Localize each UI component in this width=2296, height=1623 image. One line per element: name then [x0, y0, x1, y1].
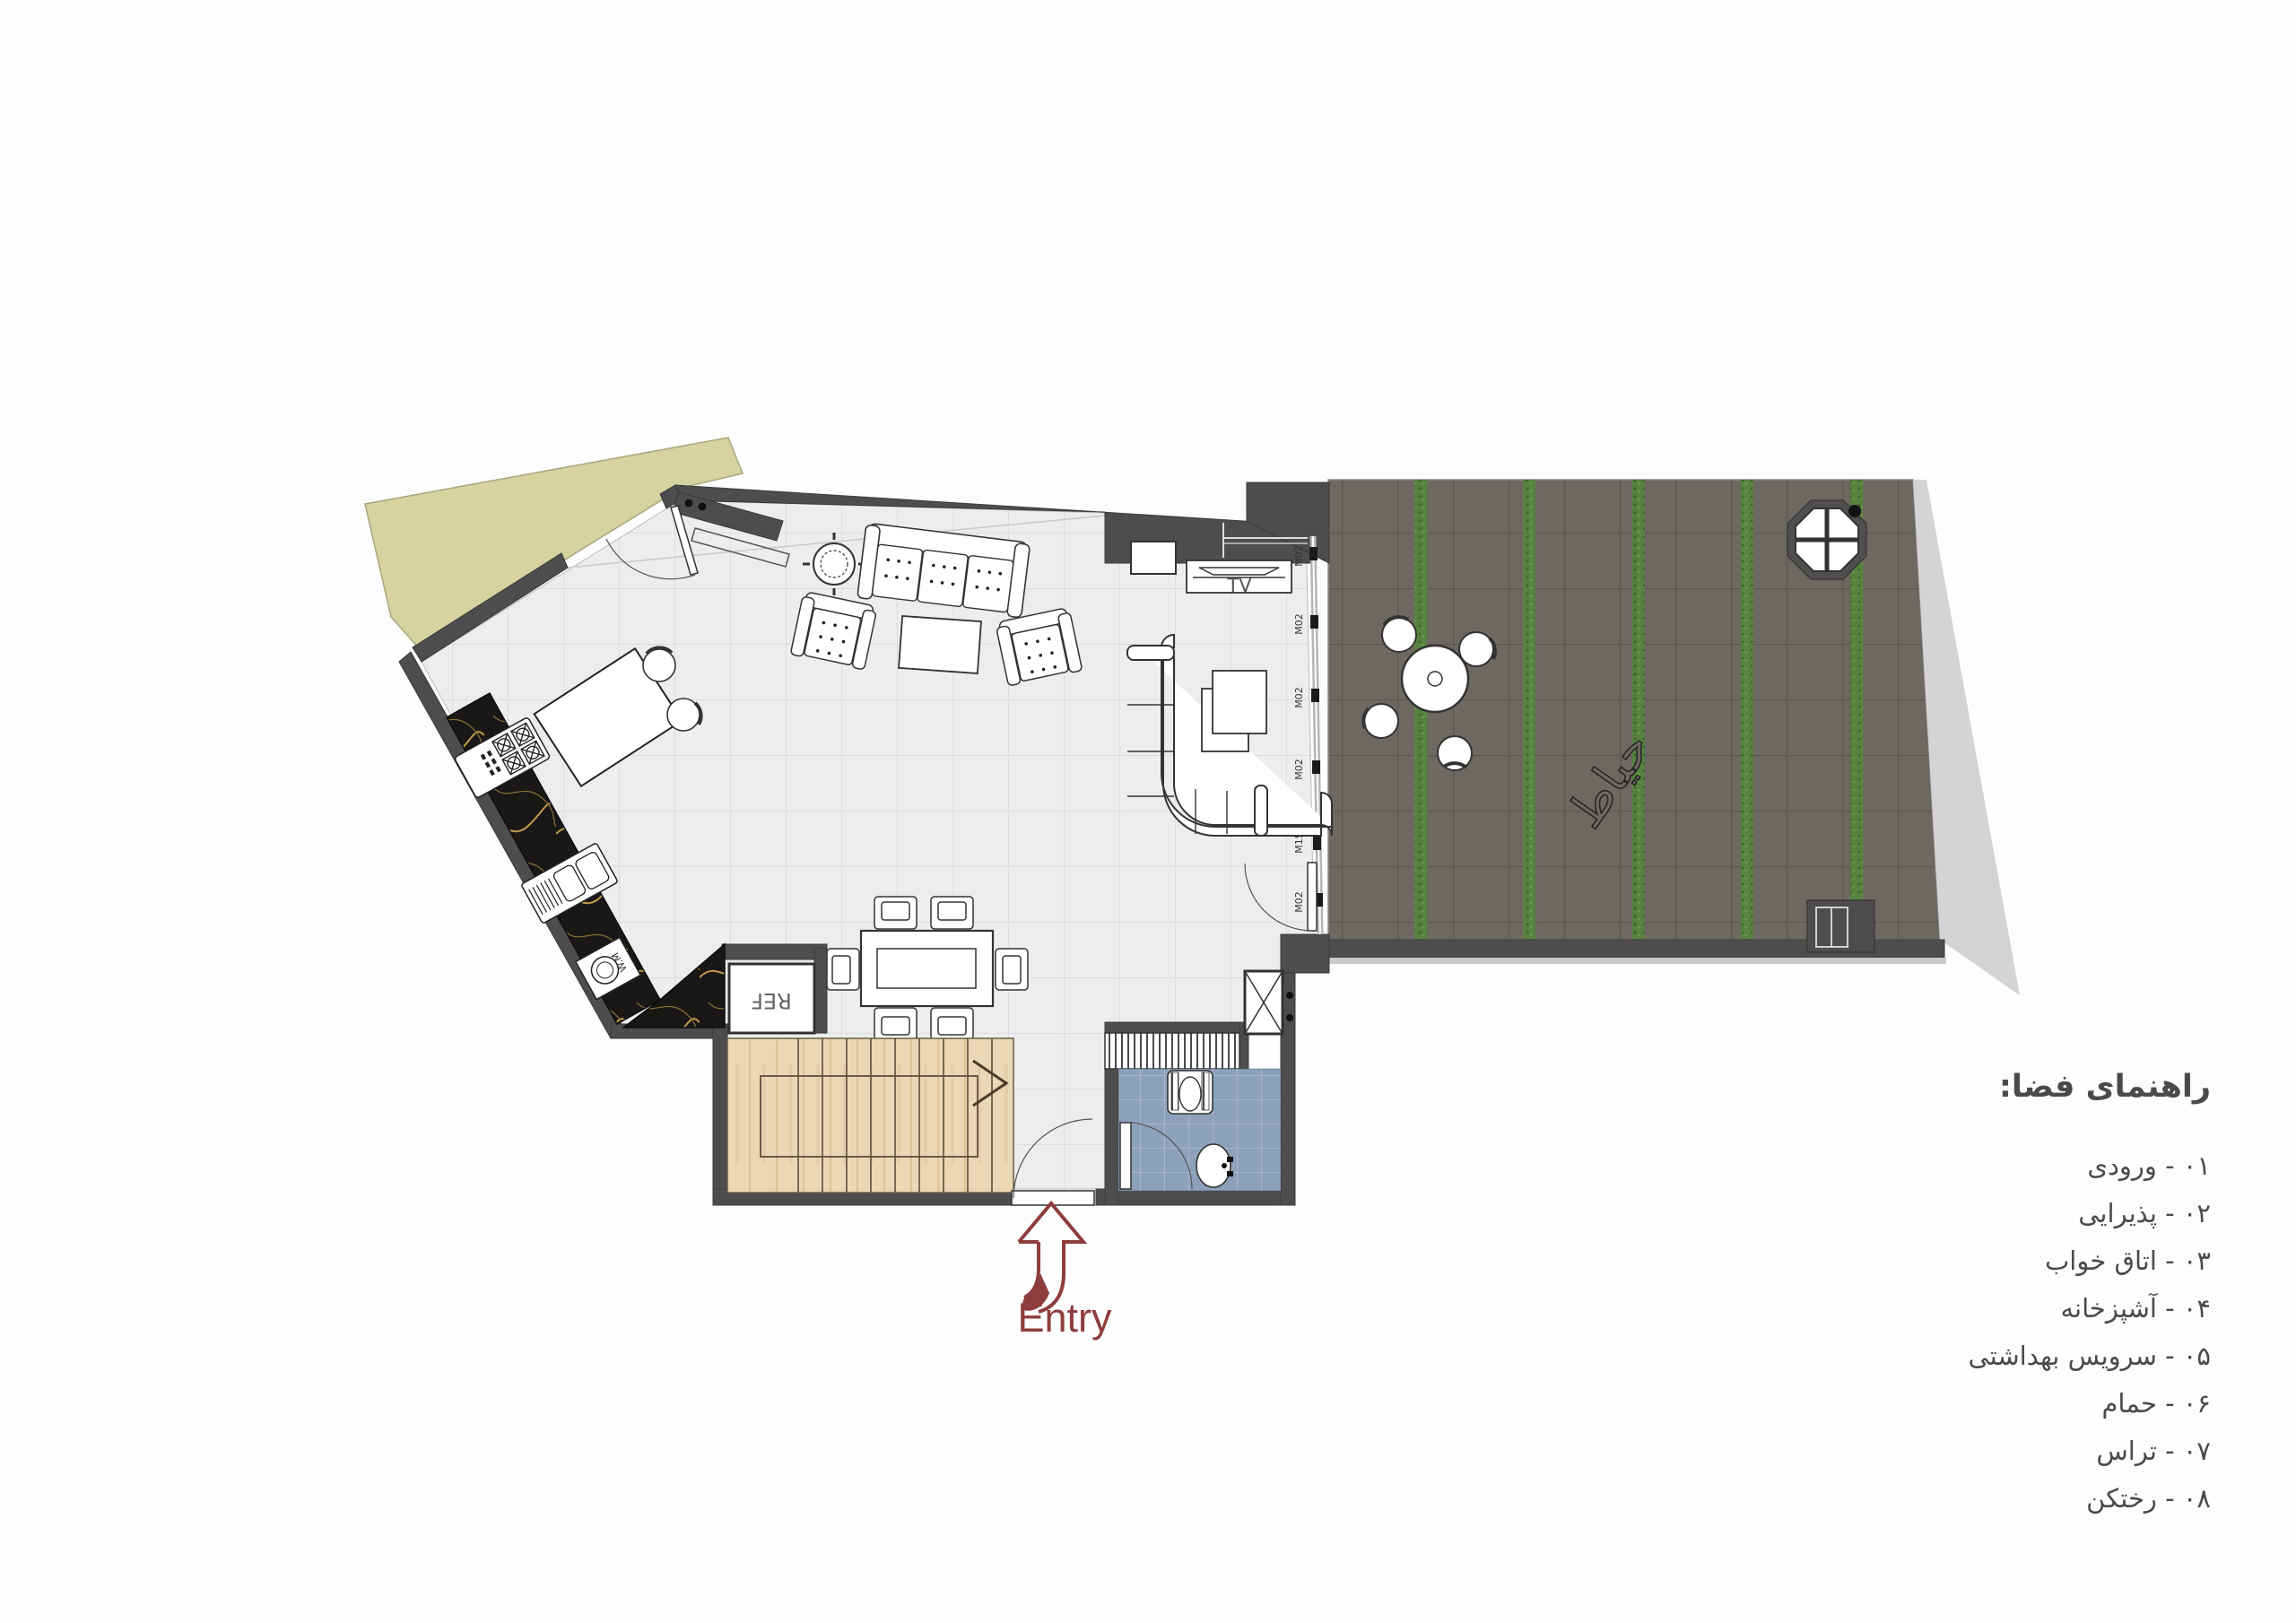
svg-text:TV: TV	[1226, 575, 1252, 596]
svg-text:M02: M02	[1293, 613, 1305, 635]
legend-item: ۰۵ - سرویس بهداشتی	[1968, 1332, 2211, 1380]
refrigerator: REF	[729, 964, 814, 1033]
legend-item: ۰۷ - تراس	[1968, 1428, 2211, 1475]
bathroom-door-leaf	[1120, 1123, 1131, 1189]
terrace-door-leaf	[1308, 863, 1317, 931]
bathroom	[1118, 1069, 1281, 1191]
octagon-window	[1787, 500, 1866, 579]
svg-text:M02: M02	[1293, 891, 1305, 913]
staircase	[727, 1038, 1013, 1193]
legend-item: ۰۴ - آشپزخانه	[1968, 1285, 2211, 1332]
octagon-dot	[1848, 505, 1861, 517]
courtyard: حیاط	[1305, 480, 2020, 995]
entry-label: Entry	[997, 1295, 1132, 1341]
svg-text:M02: M02	[1293, 759, 1305, 780]
legend-item: ۰۱ - ورودی	[1968, 1142, 2211, 1190]
coffee-table	[899, 616, 981, 673]
svg-text:M02: M02	[1293, 687, 1305, 708]
floor-plan-drawing: حیاط	[341, 421, 2036, 1399]
floor-plan-page: حیاط	[0, 0, 2296, 1623]
tv-cabinet: TV	[1187, 560, 1291, 596]
legend-title: راهنمای فضا:	[1968, 1069, 2211, 1105]
legend-item: ۰۲ - پذیرایی	[1968, 1190, 2211, 1237]
legend-item: ۰۳ - اتاق خواب	[1968, 1237, 2211, 1285]
svg-text:REF: REF	[751, 988, 792, 1013]
closet-hatch	[1105, 1033, 1239, 1069]
toilet	[1168, 1071, 1213, 1114]
space-legend: راهنمای فضا: ۰۱ - ورودی ۰۲ - پذیرایی ۰۳ …	[1968, 1069, 2211, 1523]
courtyard-niche	[1807, 900, 1874, 952]
legend-item: ۰۶ - حمام	[1968, 1380, 2211, 1428]
svg-text:M02: M02	[1293, 545, 1305, 567]
legend-list: ۰۱ - ورودی ۰۲ - پذیرایی ۰۳ - اتاق خواب ۰…	[1968, 1142, 2211, 1523]
legend-item: ۰۸ - رختکن	[1968, 1475, 2211, 1523]
